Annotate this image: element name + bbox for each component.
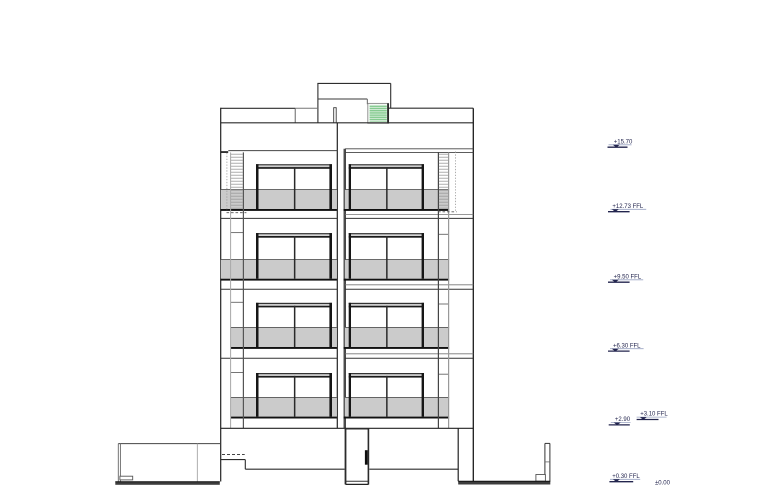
svg-text:±0.00: ±0.00: [655, 481, 671, 485]
